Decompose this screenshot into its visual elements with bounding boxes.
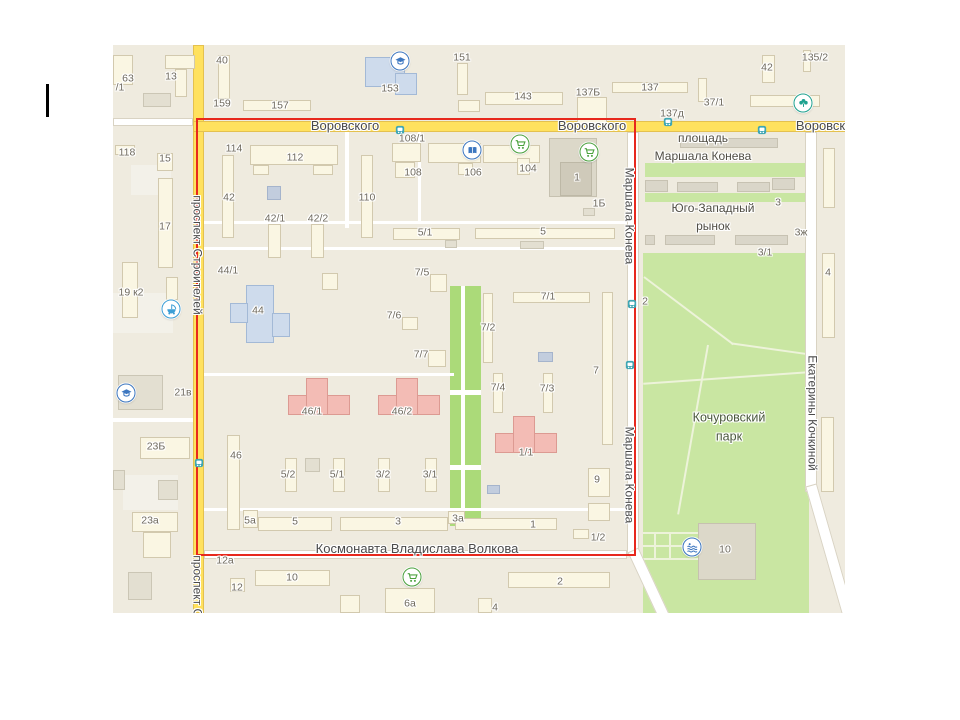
library-icon[interactable]	[463, 141, 482, 160]
building-number-label: 159	[213, 97, 231, 110]
map-canvas[interactable]: ВоровскогоВоровскогоВоровскогопроспект С…	[113, 45, 845, 613]
highlight-rectangle	[196, 118, 636, 556]
building-number-label: 44/1	[218, 264, 238, 277]
building-number-label: 17	[159, 220, 171, 233]
building-number-label: 9	[594, 473, 600, 486]
building-number-label: /1	[116, 81, 125, 94]
street-label-volkova: Космонавта Владислава Волкова	[316, 541, 519, 557]
text-cursor-artifact	[46, 84, 49, 117]
building	[478, 598, 492, 613]
street-label-stroiteley: проспект Строителей	[190, 195, 205, 314]
building-number-label: 46/1	[302, 405, 322, 418]
building-number-label: 137	[641, 81, 659, 94]
building-number-label: 7/4	[491, 381, 506, 394]
building-number-label: 3	[775, 196, 781, 209]
building	[823, 148, 835, 208]
building-number-label: 2	[642, 295, 648, 308]
building-number-label: 46	[230, 449, 242, 462]
building-number-label: 3а	[452, 512, 464, 525]
cart-icon[interactable]	[403, 568, 422, 587]
building-number-label: 6а	[404, 597, 416, 610]
building-number-label: 3/1	[423, 468, 438, 481]
building-number-label: 46/2	[392, 405, 412, 418]
building-number-label: 5а	[244, 514, 256, 527]
cart-icon[interactable]	[511, 135, 530, 154]
building-number-label: 4	[825, 266, 831, 279]
market-stall	[645, 180, 668, 192]
building-number-label: 42/2	[308, 212, 328, 225]
street-label-vorovskogo: Воровского	[558, 118, 626, 134]
road-minor	[113, 418, 193, 422]
building-number-label: 1/1	[519, 446, 534, 459]
building-number-label: 5	[292, 515, 298, 528]
park-area	[645, 163, 805, 177]
building-number-label: 2	[557, 575, 563, 588]
building-number-label: 114	[226, 142, 243, 155]
building-number-label: 42	[761, 61, 773, 74]
market-stall	[737, 182, 770, 192]
school-icon[interactable]	[391, 52, 410, 71]
building-number-label: 135/2	[802, 51, 828, 64]
building-number-label: 7/6	[387, 309, 402, 322]
building-number-label: 1	[574, 171, 580, 184]
building-number-label: 108/1	[399, 132, 425, 145]
building-gray	[143, 93, 171, 107]
building-number-label: 21в	[174, 386, 191, 399]
transit-stop-icon[interactable]	[625, 360, 635, 370]
building	[166, 277, 178, 300]
building-number-label: 37/1	[704, 96, 724, 109]
road-secondary	[113, 118, 193, 126]
building-number-label: 7/3	[540, 382, 555, 395]
building-number-label: 7	[593, 364, 599, 377]
building-number-label: 42/1	[265, 212, 285, 225]
building-number-label: 5	[540, 225, 546, 238]
building-number-label: 106	[464, 166, 482, 179]
building-number-label: 10	[719, 543, 731, 556]
park-path	[654, 532, 656, 560]
building-number-label: 3/1	[758, 246, 773, 259]
building-number-label: 112	[287, 151, 304, 164]
building	[458, 100, 480, 112]
market-stall	[677, 182, 718, 192]
building	[340, 595, 360, 613]
school-icon[interactable]	[117, 384, 136, 403]
building-number-label: 10	[286, 571, 298, 584]
building-number-label: 137Б	[576, 86, 600, 99]
transit-stop-icon[interactable]	[194, 458, 204, 468]
building-number-label: 104	[519, 162, 537, 175]
building-number-label: 15	[159, 152, 171, 165]
street-label-stroiteley: проспект Строителей	[190, 555, 205, 613]
building-number-label: 44	[252, 304, 264, 317]
building-number-label: 4	[492, 601, 498, 613]
building-number-label: 12	[231, 581, 243, 594]
building-number-label: 3	[395, 515, 401, 528]
building-number-label: 23Б	[147, 440, 166, 453]
page: ВоровскогоВоровскогоВоровскогопроспект С…	[0, 0, 960, 720]
park-path	[669, 532, 671, 560]
street-label-koneva: Маршала Конева	[622, 427, 637, 524]
building-number-label: 7/2	[481, 321, 496, 334]
building-number-label: 151	[453, 51, 471, 64]
building-number-label: 110	[359, 191, 376, 204]
building-number-label: 108	[404, 166, 422, 179]
building-number-label: 5/1	[330, 468, 345, 481]
street-label-kochkinoy: Екатерины Кочкиной	[805, 355, 820, 471]
building-number-label: 7/5	[415, 266, 430, 279]
building-number-label: 40	[216, 54, 228, 67]
building	[457, 63, 468, 95]
building-number-label: 1Б	[593, 197, 606, 210]
building-number-label: 7/1	[541, 290, 556, 303]
building	[821, 417, 834, 492]
building-gray	[128, 572, 152, 600]
market-stall	[645, 235, 655, 245]
building-number-label: 1/2	[591, 531, 606, 544]
transit-stop-icon[interactable]	[757, 125, 767, 135]
building-number-label: 3/2	[376, 468, 391, 481]
building-number-label: 157	[271, 99, 289, 112]
building-number-label: 12а	[216, 554, 234, 567]
road-secondary	[805, 483, 845, 613]
building	[143, 532, 171, 558]
building-number-label: 7/7	[414, 348, 429, 361]
building-number-label: 13	[165, 70, 177, 83]
street-label-koneva: Маршала Конева	[622, 168, 637, 265]
market-stall	[735, 235, 788, 245]
park-icon[interactable]	[794, 94, 813, 113]
building-number-label: 3ж	[795, 226, 808, 239]
building-number-label: 1	[530, 518, 536, 531]
building-gray	[158, 480, 178, 500]
building-number-label: 5/2	[281, 468, 296, 481]
market-stall	[665, 235, 715, 245]
building	[165, 55, 195, 69]
transit-stop-icon[interactable]	[627, 299, 637, 309]
building-number-label: 143	[514, 90, 532, 103]
pool-icon[interactable]	[683, 538, 702, 557]
area-label-square: площадь Маршала Конева	[655, 129, 752, 165]
street-label-vorovskogo: Воровского	[796, 118, 845, 134]
building-number-label: 5/1	[418, 226, 433, 239]
building-number-label: 137д	[660, 107, 684, 120]
building-number-label: 19 к2	[118, 286, 143, 299]
market-stall	[772, 178, 795, 190]
building-gray	[113, 470, 125, 490]
street-label-vorovskogo: Воровского	[311, 118, 379, 134]
area-label-market: Юго-Западный рынок	[672, 199, 755, 235]
building-number-label: 118	[119, 146, 136, 159]
stroller-icon[interactable]	[162, 300, 181, 319]
building-number-label: 153	[381, 82, 399, 95]
building-number-label: 23а	[141, 514, 159, 527]
cart-icon[interactable]	[580, 143, 599, 162]
building-number-label: 42	[223, 191, 235, 204]
area-label-park: Кочуровский парк	[693, 408, 766, 446]
